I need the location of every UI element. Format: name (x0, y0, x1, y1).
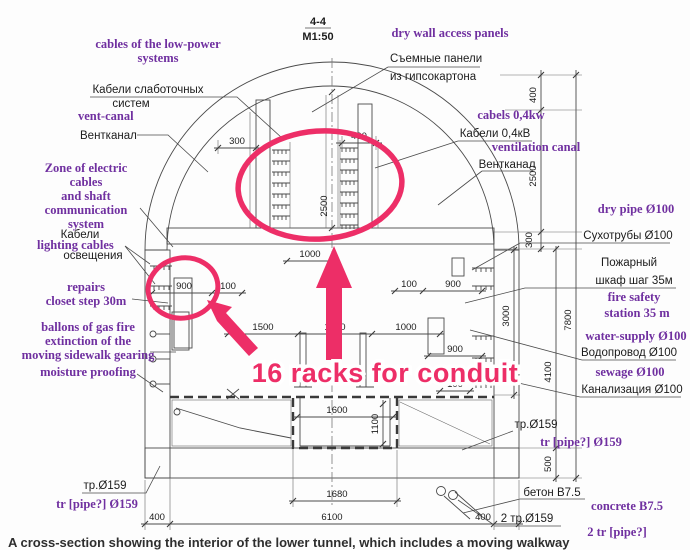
dim-1680: 1680 (326, 489, 347, 500)
highlight-arrow-up (316, 246, 352, 360)
label-water-en: water-supply Ø100 (585, 329, 686, 343)
caption: A cross-section showing the interior of … (8, 535, 690, 550)
dim-7800-rightchain: 7800 (563, 309, 574, 330)
label-concrete-ru: бетон В7.5 (523, 487, 580, 499)
dim-900-right: 900 (445, 279, 461, 290)
section-ref: 4-4 (310, 16, 327, 28)
label-repairs-1: repairs (67, 280, 105, 294)
label-fire-ru-1: Пожарный (601, 257, 657, 269)
ballast-left (172, 400, 291, 446)
label-lighting-en: lighting cables (37, 238, 114, 252)
label-pipe159-right-en: tr [pipe?] Ø159 (540, 435, 622, 449)
dim-6100: 6100 (321, 512, 342, 523)
label-zone-1: Zone of electric (45, 161, 128, 175)
label-ballons-1: ballons of gas fire (41, 320, 135, 334)
fire-cabinet (428, 318, 444, 354)
shaft-guide-lines (250, 95, 378, 228)
ballast-diagonal (400, 402, 490, 444)
label-fire-en-2: station 35 m (604, 306, 670, 320)
dim-1000-mid: 1000 (395, 322, 416, 333)
label-low-power-ru-1: Кабели слаботочных (92, 84, 203, 96)
drain-line (176, 408, 291, 438)
dim-400-rightchain: 400 (528, 87, 539, 103)
leader-lines (82, 28, 681, 526)
right-upper-box (452, 258, 464, 276)
dim-300-rightchain: 300 (524, 232, 535, 248)
label-cables04-ru: Кабели 0,4кВ (460, 128, 531, 140)
highlight-ellipse-conduits (234, 125, 405, 244)
dim-3000-rightchain: 3000 (501, 305, 512, 326)
tunnel-cross-section-screenshot: 300 400 2500 1000 900 100 100 900 1500 1… (0, 0, 690, 550)
label-low-power-en-1: cables of the low-power (95, 37, 221, 51)
label-pipe159-right-ru: тр.Ø159 (515, 419, 558, 431)
dim-100-left: 100 (220, 281, 236, 292)
dim-100-right: 100 (401, 279, 417, 290)
label-moisture: moisture proofing (40, 365, 136, 379)
label-fire-ru-2: шкаф шаг 35м (595, 275, 672, 287)
label-ballons-3: moving sidewalk gearing (22, 348, 155, 362)
label-drywall-ru-2: из гипсокартона (390, 71, 477, 83)
label-cables04-en: cabels 0,4kw (477, 108, 544, 122)
dim-900-right-lower: 900 (447, 344, 463, 355)
label-fire-en-1: fire safety (608, 290, 662, 304)
label-ballons-2: extinction of the (45, 334, 132, 348)
label-vent-canal-left-ru: Вентканал (80, 130, 137, 142)
dim-1100-trench: 1100 (370, 414, 381, 434)
label-sewage-en: sewage Ø100 (595, 365, 664, 379)
engineering-drawing: 300 400 2500 1000 900 100 100 900 1500 1… (0, 0, 690, 550)
highlight-arrow-diagonal (207, 300, 258, 356)
label-repairs-2: closet step 30m (46, 294, 127, 308)
label-vent-canal-right-ru: Вентканал (479, 159, 536, 171)
label-zone-4: communication (45, 203, 128, 217)
dim-1600-trench: 1600 (326, 405, 347, 416)
dim-400-bottom-right: 400 (475, 512, 491, 523)
dim-500-rightchain: 500 (543, 456, 554, 472)
label-pipe159-left-ru: тр.Ø159 (84, 480, 127, 492)
label-vent-canal-left-en: vent-canal (78, 109, 134, 123)
section-scale: M1:50 (302, 31, 333, 43)
label-low-power-en-2: systems (138, 51, 179, 65)
drain-port (174, 409, 180, 415)
section-header: 4-4 M1:50 (302, 16, 333, 43)
label-drywall-ru-1: Съемные панели (390, 53, 482, 65)
dim-900-left: 900 (176, 281, 192, 292)
dim-300-top: 300 (229, 136, 245, 147)
right-shaft-racks (340, 148, 358, 229)
dim-4100-rightchain: 4100 (543, 361, 554, 382)
label-drypipe-en: dry pipe Ø100 (598, 202, 674, 216)
label-drywall-en: dry wall access panels (391, 26, 508, 40)
right-vent-shaft-wall (358, 104, 372, 228)
label-drypipe-ru: Сухотрубы Ø100 (583, 230, 672, 242)
left-shaft-racks (272, 150, 290, 220)
label-zone-2: cables (70, 175, 103, 189)
label-zone-3: and shaft (61, 189, 112, 203)
label-annotations: cables of the low-power systems Кабели с… (22, 26, 687, 539)
left-vent-shaft-wall (256, 100, 270, 228)
label-water-ru: Водопровод Ø100 (581, 347, 677, 359)
label-concrete-en: concrete B7.5 (591, 499, 663, 513)
dim-400-bottom-left: 400 (149, 512, 165, 523)
label-pipe159-double-ru: 2 тр.Ø159 (501, 513, 554, 525)
label-pipe159-left-en: tr [pipe?] Ø159 (56, 497, 138, 511)
dim-2500-center: 2500 (319, 195, 330, 216)
highlight-text: 16 racks for conduit (252, 358, 519, 388)
label-vent-canal-right-en: ventilation canal (492, 140, 581, 154)
dim-1000-top: 1000 (299, 249, 320, 260)
label-sewage-ru: Канализация Ø100 (581, 384, 682, 396)
dim-1500: 1500 (252, 322, 273, 333)
